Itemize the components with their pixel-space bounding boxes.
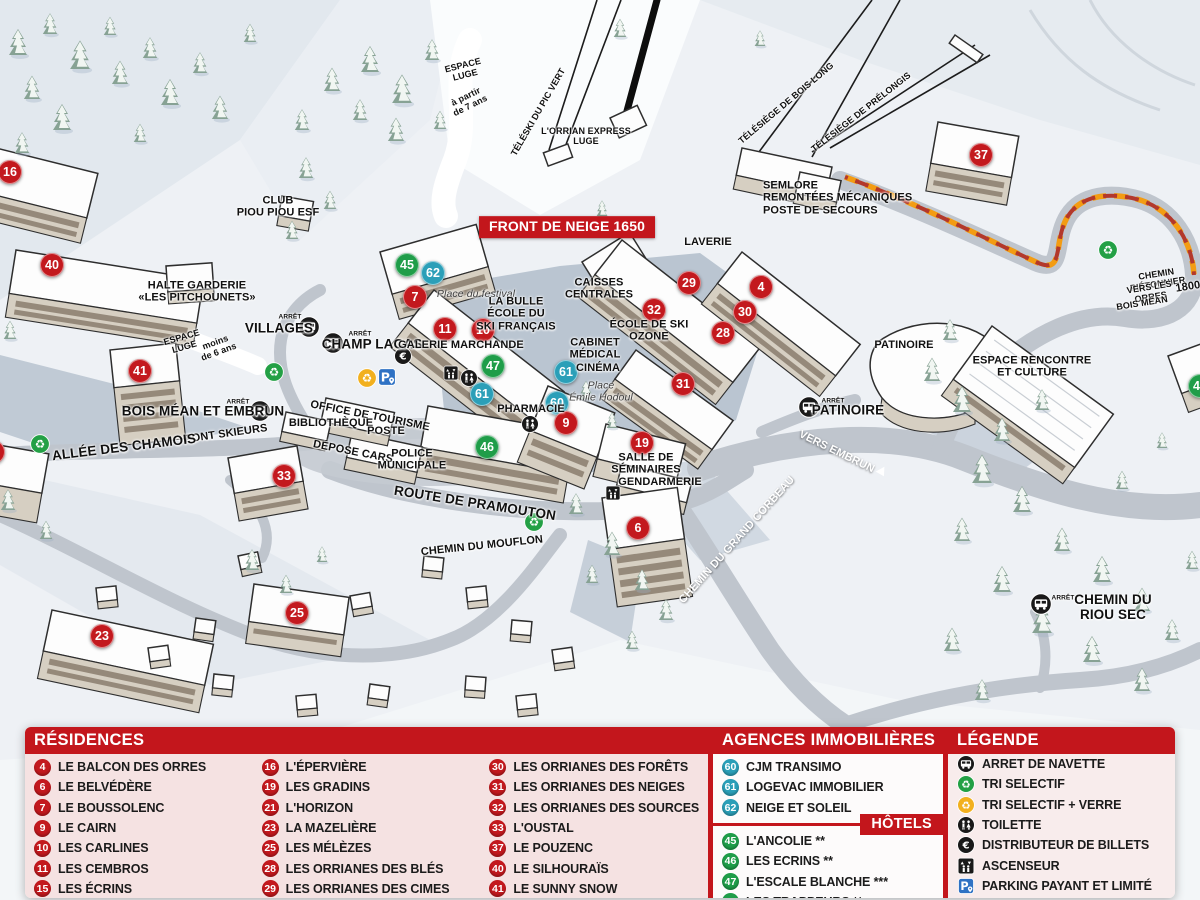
icon-glyph (30, 434, 50, 454)
recycle-icon (264, 362, 284, 382)
map-label: POLICE MUNICIPALE (378, 448, 447, 473)
number-badge: 7 (34, 799, 51, 816)
map-marker: 47 (481, 354, 505, 378)
icon-glyph (357, 368, 377, 388)
hotel-label: L'ANCOLIE ** (746, 834, 825, 848)
marker-number: 28 (716, 326, 730, 340)
residence-label: LES ÉCRINS (58, 882, 132, 896)
legende-icon (957, 836, 975, 854)
number-badge: 15 (34, 880, 51, 897)
map-marker: 6 (626, 516, 650, 540)
map-marker: 46 (475, 435, 499, 459)
bus-icon (1030, 593, 1052, 615)
map-marker: 1 (0, 440, 5, 464)
map-label: CHEMIN DU MOUFLON (420, 533, 543, 558)
marker-number: 7 (412, 290, 419, 304)
number-badge: 16 (262, 759, 279, 776)
map-label: BOIS MÉAN ET EMBRUN (122, 403, 284, 418)
icon-glyph (521, 415, 539, 433)
residences-columns: 4 LE BALCON DES ORRES 6 LE BELVÉDÈRE 7 L… (25, 754, 708, 898)
parking-icon: PARKING PAYANT ET LIMITÉ (948, 876, 1175, 896)
map-label: ESPACE LUGE (162, 327, 203, 357)
map-marker: 61 (470, 382, 494, 406)
recycle-icon: TRI SELECTIF + VERRE (948, 795, 1175, 815)
residence-item: 16 L'ÉPERVIÈRE (253, 757, 481, 777)
number-badge: 32 (489, 799, 506, 816)
legende-label: TOILETTE (982, 818, 1041, 832)
hotel-label: LES TRAPPEURS ** (746, 895, 862, 898)
map-label: TÉLÉSIÈGE DE BOIS LONG (737, 60, 836, 145)
recycle-icon (1098, 240, 1118, 260)
legende-section: LÉGENDE ARRET DE NAVETTE TRI SELECTIF (948, 727, 1175, 898)
residence-item: 23 LA MAZELIÈRE (253, 818, 481, 838)
marker-number: 49 (1193, 379, 1200, 393)
residences-col-2: 16 L'ÉPERVIÈRE 19 LES GRADINS 21 L'HORIZ… (253, 757, 481, 898)
bus-icon: ARRET DE NAVETTE (948, 754, 1175, 774)
number-badge: 21 (262, 799, 279, 816)
map-marker: 40 (40, 253, 64, 277)
map-label: CABINET MÉDICAL (570, 337, 621, 362)
hotel-item: 49 LES TRAPPEURS ** (713, 892, 943, 898)
map-label: GENDARMERIE (618, 476, 702, 488)
map-label: TÉLÉSIÈGE DE PRÉLONGIS (809, 70, 912, 154)
residence-item: 32 LES ORRIANES DES SOURCES (480, 798, 708, 818)
marker-number: 61 (475, 387, 489, 401)
residence-item: 19 LES GRADINS (253, 777, 481, 797)
residence-item: 10 LES CARLINES (25, 838, 253, 858)
residences-col-3: 30 LES ORRIANES DES FORÊTS 31 LES ORRIAN… (480, 757, 708, 898)
marker-number: 33 (277, 469, 291, 483)
number-badge: 4 (34, 759, 51, 776)
residence-item: 4 LE BALCON DES ORRES (25, 757, 253, 777)
map-marker: 4 (749, 275, 773, 299)
map-marker: 37 (969, 143, 993, 167)
euro-icon: DISTRIBUTEUR DE BILLETS (948, 835, 1175, 855)
map-label: HALTE GARDERIE «LES PITCHOUNETS» (138, 280, 255, 305)
residence-label: LES ORRIANES DES BLÉS (286, 862, 444, 876)
agences-section: AGENCES IMMOBILIÈRES 60 CJM TRANSIMO 61 … (713, 727, 943, 898)
map-label: VERS EMBRUN (797, 428, 889, 481)
legende-icon (957, 877, 975, 895)
marker-number: 45 (400, 258, 414, 272)
number-badge: 19 (262, 779, 279, 796)
residence-label: LE CAIRN (58, 821, 116, 835)
number-badge: 37 (489, 840, 506, 857)
marker-number: 11 (438, 322, 451, 336)
legende-label: ASCENSEUR (982, 859, 1060, 873)
number-badge: 41 (489, 880, 506, 897)
map-marker: 28 (711, 321, 735, 345)
elevator-icon (443, 365, 459, 381)
recycle-icon (357, 368, 377, 388)
number-badge: 23 (262, 820, 279, 837)
number-badge: 10 (34, 840, 51, 857)
agence-label: NEIGE ET SOLEIL (746, 801, 851, 815)
legende-label: ARRET DE NAVETTE (982, 757, 1105, 771)
map-label: CINÉMA (576, 362, 620, 374)
marker-number: 47 (486, 359, 500, 373)
map-label: SALLE DE SÉMINAIRES (611, 452, 680, 477)
map-marker: 30 (733, 300, 757, 324)
number-badge: 28 (262, 860, 279, 877)
resort-map: ♻ € (0, 0, 1200, 900)
map-marker: 23 (90, 624, 114, 648)
residence-item: 21 L'HORIZON (253, 798, 481, 818)
map-label: CHEMIN DU GRAND CORBEAU (677, 474, 798, 606)
number-badge: 45 (722, 833, 739, 850)
hotels-list: 45 L'ANCOLIE ** 46 LES ECRINS ** 47 L'ES… (713, 828, 943, 898)
map-marker: 25 (285, 601, 309, 625)
number-badge: 46 (722, 853, 739, 870)
elevator-icon: ASCENSEUR (948, 855, 1175, 875)
toilet-icon: TOILETTE (948, 815, 1175, 835)
map-marker: 11 (433, 317, 457, 341)
residence-item: 6 LE BELVÉDÈRE (25, 777, 253, 797)
residence-label: LE SILHOURAÏS (513, 862, 608, 876)
number-badge: 30 (489, 759, 506, 776)
map-label: VILLAGES (245, 320, 313, 335)
marker-number: 37 (974, 148, 988, 162)
residence-label: LA MAZELIÈRE (286, 821, 377, 835)
icon-glyph (264, 362, 284, 382)
legende-label: TRI SELECTIF + VERRE (982, 798, 1121, 812)
map-label: CHEMIN DU RIOU SEC (1070, 592, 1157, 622)
marker-number: 46 (480, 440, 494, 454)
residence-item: 33 L'OUSTAL (480, 818, 708, 838)
icon-glyph (1098, 240, 1118, 260)
residence-item: 11 LES CEMBROS (25, 858, 253, 878)
number-badge: 29 (262, 880, 279, 897)
marker-number: 6 (635, 521, 642, 535)
hotel-label: L'ESCALE BLANCHE *** (746, 875, 888, 889)
agence-label: CJM TRANSIMO (746, 760, 841, 774)
marker-number: 19 (635, 436, 649, 450)
residence-item: 9 LE CAIRN (25, 818, 253, 838)
map-marker: 62 (421, 261, 445, 285)
marker-number: 31 (676, 377, 690, 391)
legende-header: LÉGENDE (948, 727, 1175, 754)
map-label: FRONT DE NEIGE 1650 (479, 216, 655, 238)
number-badge: 61 (722, 779, 739, 796)
residence-label: LES ORRIANES DES SOURCES (513, 801, 699, 815)
residences-section: RÉSIDENCES 4 LE BALCON DES ORRES 6 LE BE… (25, 727, 708, 898)
icon-glyph (1030, 593, 1052, 615)
marker-number: 4 (758, 280, 765, 294)
map-label: à partir de 7 ans (447, 84, 489, 118)
agence-item: 61 LOGEVAC IMMOBILIER (713, 777, 943, 797)
residence-item: 7 LE BOUSSOLENC (25, 798, 253, 818)
map-label: 1800 (1175, 279, 1200, 295)
residence-label: LES GRADINS (286, 780, 370, 794)
residence-label: LES ORRIANES DES NEIGES (513, 780, 684, 794)
map-label: moins de 6 ans (196, 331, 238, 363)
legend-panel: RÉSIDENCES 4 LE BALCON DES ORRES 6 LE BE… (25, 727, 1175, 898)
residence-label: LE BALCON DES ORRES (58, 760, 206, 774)
map-marker: 45 (395, 253, 419, 277)
number-badge: 11 (34, 860, 51, 877)
hotels-title: HÔTELS (871, 816, 932, 832)
number-badge: 9 (34, 820, 51, 837)
residences-title: RÉSIDENCES (34, 731, 144, 750)
hotels-header: HÔTELS (860, 814, 943, 835)
map-label: PATINOIRE (874, 339, 933, 351)
residence-label: LE SUNNY SNOW (513, 882, 617, 896)
residence-label: LE BOUSSOLENC (58, 801, 164, 815)
recycle-icon: TRI SELECTIF (948, 774, 1175, 794)
toilet-icon (521, 415, 539, 433)
map-label: ALLÉE DES CHAMOIS (51, 431, 197, 464)
residence-label: L'OUSTAL (513, 821, 573, 835)
legende-label: PARKING PAYANT ET LIMITÉ (982, 879, 1152, 893)
residence-label: LES ORRIANES DES CIMES (286, 882, 450, 896)
map-label: BIBLIOTHÈQUE (289, 417, 373, 429)
recycle-icon (30, 434, 50, 454)
parking-icon (377, 367, 397, 387)
residences-col-1: 4 LE BALCON DES ORRES 6 LE BELVÉDÈRE 7 L… (25, 757, 253, 898)
icon-glyph (443, 365, 459, 381)
legende-list: ARRET DE NAVETTE TRI SELECTIF TRI SELECT… (948, 754, 1175, 896)
map-marker: 29 (677, 271, 701, 295)
marker-number: 16 (3, 165, 17, 179)
map-label: GALERIE MARCHANDE (398, 339, 524, 351)
map-marker: 7 (403, 285, 427, 309)
map-marker: 16 (0, 160, 22, 184)
hotel-item: 46 LES ECRINS ** (713, 851, 943, 871)
map-label: PHARMACIE (497, 403, 565, 415)
residence-label: LES CEMBROS (58, 862, 149, 876)
map-marker: 31 (671, 372, 695, 396)
residence-label: LES ORRIANES DES FORÊTS (513, 760, 688, 774)
map-label: ÉCOLE DE SKI OZONE (610, 319, 689, 344)
agences-header: AGENCES IMMOBILIÈRES (713, 727, 943, 754)
map-label: SEMLORE REMONTÉES MÉCANIQUES POSTE DE SE… (763, 180, 912, 217)
number-badge: 62 (722, 799, 739, 816)
residence-item: 28 LES ORRIANES DES BLÉS (253, 858, 481, 878)
map-label: ESPACE LUGE (444, 56, 485, 84)
legende-icon (957, 755, 975, 773)
marker-number: 30 (738, 305, 752, 319)
residence-label: L'ÉPERVIÈRE (286, 760, 367, 774)
marker-number: 23 (95, 629, 109, 643)
legende-icon (957, 857, 975, 875)
number-badge: 60 (722, 759, 739, 776)
map-label: Place Émile Hodoul (569, 380, 633, 404)
legende-icon (957, 775, 975, 793)
residence-item: 29 LES ORRIANES DES CIMES (253, 879, 481, 898)
residence-item: 25 LES MÉLÈZES (253, 838, 481, 858)
residence-item: 41 LE SUNNY SNOW (480, 879, 708, 898)
residence-item: 30 LES ORRIANES DES FORÊTS (480, 757, 708, 777)
hotel-label: LES ECRINS ** (746, 854, 833, 868)
marker-number: 61 (559, 365, 573, 379)
map-label: LA BULLE ÉCOLE DU SKI FRANÇAIS (476, 296, 555, 333)
residences-header: RÉSIDENCES (25, 727, 708, 754)
legende-icon (957, 816, 975, 834)
residence-item: 40 LE SILHOURAÏS (480, 858, 708, 878)
icon-glyph (377, 367, 397, 387)
map-label: L'ORRIAN EXPRESS LUGE (541, 126, 631, 146)
agences-title: AGENCES IMMOBILIÈRES (722, 731, 935, 750)
number-badge: 49 (722, 893, 739, 898)
legende-icon (957, 796, 975, 814)
map-label: ROUTE DE PRAMOUTON (393, 483, 557, 524)
map-marker: 33 (272, 464, 296, 488)
map-label: PATINOIRE (812, 402, 884, 417)
legende-title: LÉGENDE (957, 731, 1039, 750)
legende-label: TRI SELECTIF (982, 777, 1065, 791)
hotel-item: 47 L'ESCALE BLANCHE *** (713, 871, 943, 891)
map-label: POSTE (367, 425, 405, 437)
marker-number: 62 (426, 266, 440, 280)
map-label: CAISSES CENTRALES (565, 277, 633, 302)
residence-label: LE BELVÉDÈRE (58, 780, 152, 794)
number-badge: 40 (489, 860, 506, 877)
marker-number: 40 (45, 258, 59, 272)
residence-item: 37 LE POUZENC (480, 838, 708, 858)
number-badge: 6 (34, 779, 51, 796)
legende-label: DISTRIBUTEUR DE BILLETS (982, 838, 1149, 852)
marker-number: 32 (647, 303, 661, 317)
map-label: ESPACE RENCONTRE ET CULTURE (973, 355, 1092, 380)
map-label: LAVERIE (684, 236, 732, 248)
marker-number: 9 (563, 416, 570, 430)
number-badge: 25 (262, 840, 279, 857)
residence-label: LE POUZENC (513, 841, 593, 855)
number-badge: 47 (722, 873, 739, 890)
map-marker: 41 (128, 359, 152, 383)
marker-number: 25 (290, 606, 304, 620)
residence-item: 31 LES ORRIANES DES NEIGES (480, 777, 708, 797)
map-marker: 49 (1188, 374, 1200, 398)
number-badge: 31 (489, 779, 506, 796)
marker-number: 41 (133, 364, 147, 378)
residence-label: LES MÉLÈZES (286, 841, 372, 855)
map-label: CLUB PIOU PIOU ESF (237, 195, 320, 220)
marker-number: 29 (682, 276, 696, 290)
agence-item: 60 CJM TRANSIMO (713, 757, 943, 777)
number-badge: 33 (489, 820, 506, 837)
residence-item: 15 LES ÉCRINS (25, 879, 253, 898)
residence-label: L'HORIZON (286, 801, 353, 815)
residence-label: LES CARLINES (58, 841, 148, 855)
hotels-divider: HÔTELS (713, 823, 943, 826)
agence-label: LOGEVAC IMMOBILIER (746, 780, 884, 794)
agences-list: 60 CJM TRANSIMO 61 LOGEVAC IMMOBILIER 62… (713, 754, 943, 818)
